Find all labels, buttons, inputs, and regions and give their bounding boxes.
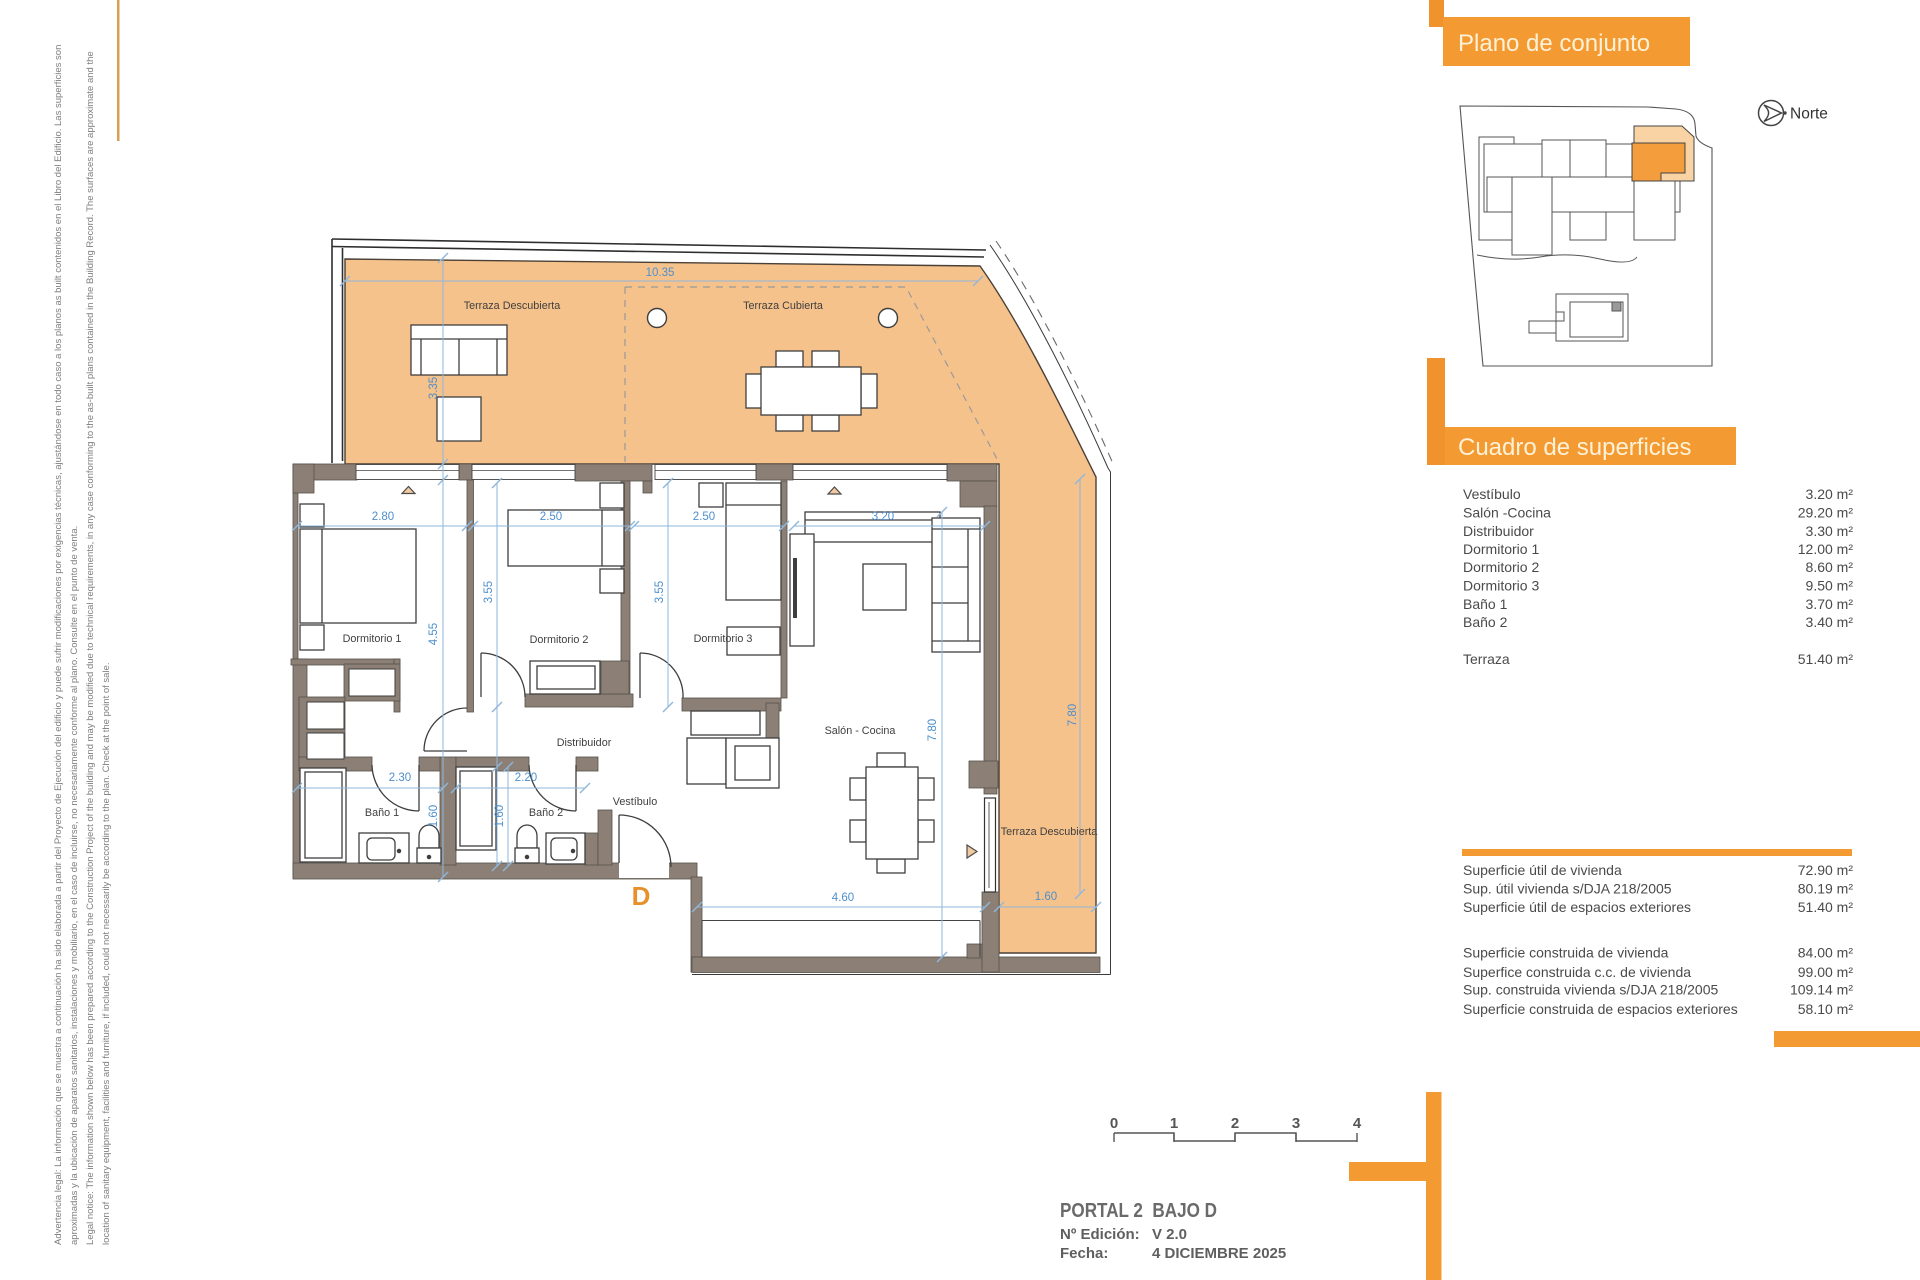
svg-text:Sup. útil vivienda s/DJA 218/2: Sup. útil vivienda s/DJA 218/2005 (1463, 881, 1672, 897)
svg-text:Sup. construida vivienda s/DJA: Sup. construida vivienda s/DJA 218/2005 (1463, 982, 1718, 998)
svg-text:4: 4 (1353, 1115, 1362, 1132)
svg-text:4.55: 4.55 (428, 623, 440, 645)
svg-text:Dormitorio 2: Dormitorio 2 (1463, 559, 1539, 575)
svg-text:Advertencia legal: La informac: Advertencia legal: La información que se… (53, 45, 64, 1245)
svg-text:Nº Edición:: Nº Edición: (1060, 1226, 1140, 1243)
svg-text:84.00 m²: 84.00 m² (1798, 945, 1854, 961)
svg-text:3.20: 3.20 (872, 511, 894, 523)
svg-text:1.60: 1.60 (428, 805, 440, 827)
svg-text:51.40 m²: 51.40 m² (1798, 651, 1854, 667)
svg-text:3.40 m²: 3.40 m² (1806, 614, 1854, 630)
svg-text:Plano de conjunto: Plano de conjunto (1458, 30, 1650, 57)
svg-text:Salón - Cocina: Salón - Cocina (825, 725, 896, 737)
svg-text:51.40 m²: 51.40 m² (1798, 899, 1854, 915)
svg-text:Distribuidor: Distribuidor (557, 737, 612, 749)
svg-text:PORTAL 2 BAJO D: PORTAL 2 BAJO D (1060, 1200, 1217, 1222)
svg-text:12.00 m²: 12.00 m² (1798, 541, 1854, 557)
svg-text:3.55: 3.55 (654, 581, 666, 603)
svg-text:Distribuidor: Distribuidor (1463, 523, 1534, 539)
svg-text:D: D (632, 881, 651, 911)
svg-text:Terraza Descubierta: Terraza Descubierta (464, 300, 561, 312)
svg-text:Baño 1: Baño 1 (365, 807, 399, 819)
svg-text:3.20 m²: 3.20 m² (1806, 486, 1854, 502)
svg-text:Dormitorio 3: Dormitorio 3 (1463, 578, 1539, 594)
svg-text:2.30: 2.30 (389, 772, 411, 784)
svg-text:Norte: Norte (1790, 106, 1828, 123)
svg-text:3.70 m²: 3.70 m² (1806, 596, 1854, 612)
svg-text:Salón -Cocina: Salón -Cocina (1463, 505, 1551, 521)
svg-text:aproximadas y la ubicación de: aproximadas y la ubicación de aparatos s… (69, 526, 80, 1245)
svg-text:72.90 m²: 72.90 m² (1798, 862, 1854, 878)
svg-text:Terraza Descubierta: Terraza Descubierta (1001, 826, 1098, 838)
svg-text:58.10 m²: 58.10 m² (1798, 1001, 1854, 1017)
svg-text:location of sanitary equipment: location of sanitary equipment, faciliti… (101, 663, 112, 1245)
svg-text:29.20 m²: 29.20 m² (1798, 505, 1854, 521)
svg-text:3: 3 (1292, 1115, 1300, 1132)
svg-text:0: 0 (1110, 1115, 1118, 1132)
svg-text:Superficie construida de espac: Superficie construida de espacios exteri… (1463, 1001, 1738, 1017)
svg-text:109.14 m²: 109.14 m² (1790, 982, 1853, 998)
svg-text:Superfice construida c.c. de v: Superfice construida c.c. de vivienda (1463, 964, 1691, 980)
svg-text:4.60: 4.60 (832, 892, 854, 904)
svg-text:Legal notice: The information: Legal notice: The information shown belo… (85, 51, 96, 1245)
svg-text:2.50: 2.50 (693, 511, 715, 523)
svg-text:3.35: 3.35 (428, 377, 440, 399)
svg-text:2.50: 2.50 (540, 511, 562, 523)
svg-text:8.60 m²: 8.60 m² (1806, 559, 1854, 575)
svg-text:1.60: 1.60 (1035, 891, 1057, 903)
svg-text:80.19 m²: 80.19 m² (1798, 881, 1854, 897)
svg-text:Dormitorio 3: Dormitorio 3 (694, 633, 753, 645)
svg-text:1.60: 1.60 (494, 805, 506, 827)
svg-text:7.80: 7.80 (1067, 704, 1079, 726)
svg-text:Baño 1: Baño 1 (1463, 596, 1508, 612)
svg-text:Dormitorio 2: Dormitorio 2 (530, 634, 589, 646)
svg-text:Dormitorio 1: Dormitorio 1 (1463, 541, 1539, 557)
svg-text:10.35: 10.35 (646, 267, 675, 279)
svg-text:Baño 2: Baño 2 (529, 807, 563, 819)
svg-text:4 DICIEMBRE 2025: 4 DICIEMBRE 2025 (1152, 1245, 1286, 1262)
svg-text:Superficie construida de vivie: Superficie construida de vivienda (1463, 945, 1669, 961)
svg-text:2: 2 (1231, 1115, 1239, 1132)
svg-text:2.20: 2.20 (515, 772, 537, 784)
svg-text:V 2.0: V 2.0 (1152, 1226, 1187, 1243)
svg-text:Terraza: Terraza (1463, 651, 1510, 667)
svg-text:Fecha:: Fecha: (1060, 1245, 1108, 1262)
svg-text:3.30 m²: 3.30 m² (1806, 523, 1854, 539)
svg-text:99.00 m²: 99.00 m² (1798, 964, 1854, 980)
svg-text:7.80: 7.80 (927, 719, 939, 741)
svg-text:Vestíbulo: Vestíbulo (613, 796, 657, 808)
svg-text:2.80: 2.80 (372, 511, 394, 523)
svg-text:Cuadro de superficies: Cuadro de superficies (1458, 434, 1691, 461)
svg-text:Dormitorio 1: Dormitorio 1 (343, 633, 402, 645)
svg-text:1: 1 (1170, 1115, 1178, 1132)
svg-text:9.50 m²: 9.50 m² (1806, 578, 1854, 594)
svg-text:3.55: 3.55 (483, 581, 495, 603)
svg-text:Superficie útil de espacios ex: Superficie útil de espacios exteriores (1463, 899, 1691, 915)
svg-text:Vestíbulo: Vestíbulo (1463, 486, 1521, 502)
svg-text:Superficie útil de vivienda: Superficie útil de vivienda (1463, 862, 1622, 878)
svg-text:Baño 2: Baño 2 (1463, 614, 1508, 630)
svg-text:Terraza Cubierta: Terraza Cubierta (743, 300, 823, 312)
